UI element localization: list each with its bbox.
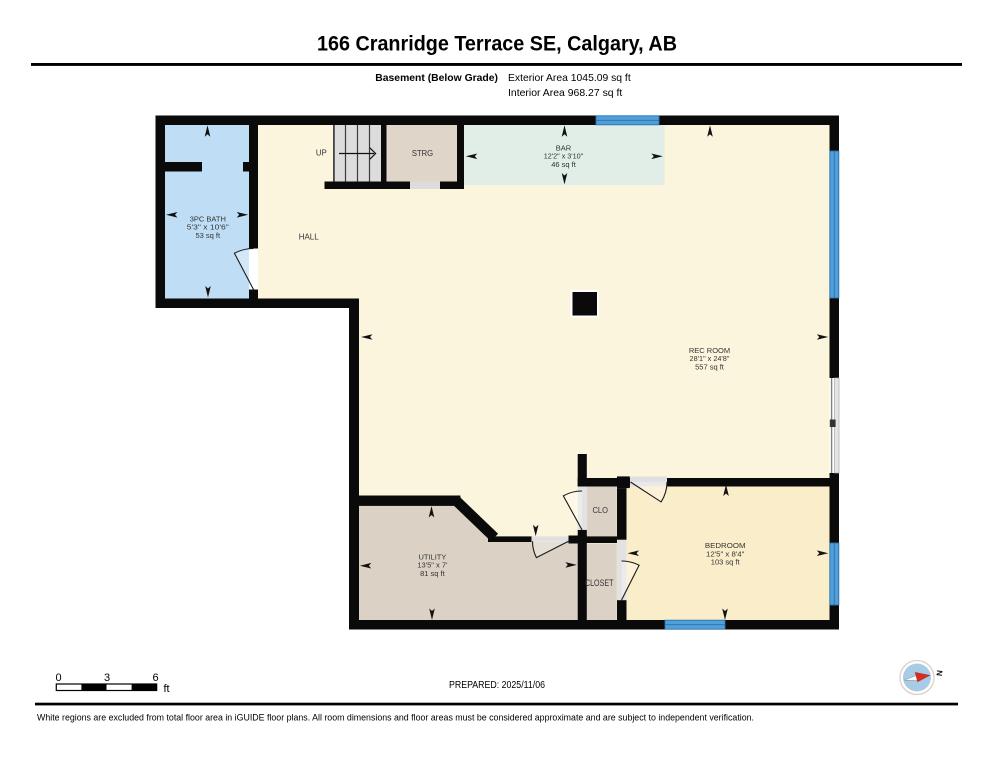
svg-text:UP: UP — [316, 148, 327, 158]
svg-text:6: 6 — [152, 672, 158, 684]
svg-text:53 sq ft: 53 sq ft — [195, 231, 221, 240]
svg-text:CLOSET: CLOSET — [585, 578, 614, 588]
svg-text:166 Cranridge Terrace SE, Calg: 166 Cranridge Terrace SE, Calgary, AB — [317, 32, 677, 55]
svg-text:Exterior Area 1045.09 sq ft: Exterior Area 1045.09 sq ft — [508, 72, 631, 84]
svg-text:Interior Area 968.27 sq ft: Interior Area 968.27 sq ft — [508, 87, 622, 99]
svg-text:STRG: STRG — [412, 148, 433, 158]
svg-text:ft: ft — [164, 683, 170, 695]
svg-text:PREPARED: 2025/11/06: PREPARED: 2025/11/06 — [449, 680, 545, 691]
svg-text:0: 0 — [55, 672, 61, 684]
svg-text:46 sq ft: 46 sq ft — [551, 160, 577, 169]
svg-text:HALL: HALL — [299, 232, 319, 242]
svg-text:81 sq ft: 81 sq ft — [420, 569, 446, 578]
svg-text:CLO: CLO — [593, 505, 609, 515]
svg-text:3: 3 — [104, 672, 110, 684]
svg-text:Basement (Below Grade): Basement (Below Grade) — [375, 72, 498, 84]
svg-text:557 sq ft: 557 sq ft — [695, 362, 725, 371]
svg-text:103 sq ft: 103 sq ft — [711, 558, 741, 567]
svg-text:White regions are excluded fro: White regions are excluded from total fl… — [37, 712, 754, 722]
